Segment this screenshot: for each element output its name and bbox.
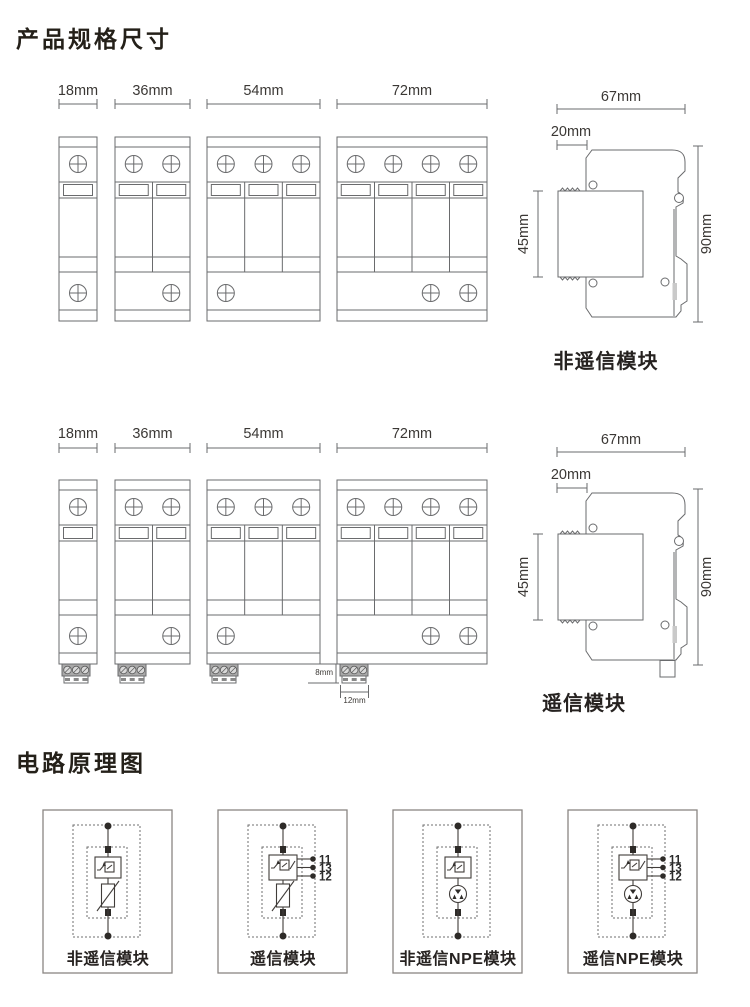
side-view-drawing [558, 150, 687, 317]
din-clip-spring [673, 283, 678, 300]
dim-label-45mm: 45mm [516, 557, 532, 597]
width-label: 18mm [58, 83, 98, 99]
circuit-card-2: 111312遥信模块 [218, 810, 347, 973]
side-view-drawing-row2 [558, 493, 687, 660]
module-front-54mm-row1 [207, 137, 320, 321]
screw-hole [675, 194, 684, 203]
diagram-canvas: 67mm 20mm 45mm 90mm 67mm 20mm 45mm 90mm … [0, 0, 750, 1007]
module-front-72mm-row2 [337, 480, 487, 683]
signal-terminal-dot [310, 856, 316, 862]
circuit-diagram-cards: 非遥信模块111312遥信模块非遥信NPE模块111312遥信NPE模块 [43, 810, 697, 973]
circuit-card-label: 遥信模块 [250, 949, 317, 968]
module-front-18mm-row1 [59, 137, 97, 321]
terminal-dot-bottom [455, 933, 462, 940]
width-label: 54mm [243, 83, 283, 99]
width-label: 72mm [392, 426, 432, 442]
terminal-dot-top [455, 823, 462, 830]
terminal-dot-top [280, 823, 287, 830]
width-label: 36mm [132, 83, 172, 99]
dim-label-20mm: 20mm [551, 467, 591, 483]
signal-terminal-side [660, 661, 675, 678]
dim-label-12mm: 12mm [343, 696, 366, 705]
module-front-36mm-row1 [115, 137, 190, 321]
module-front-36mm-row2 [115, 480, 190, 683]
module-front-54mm-row2 [207, 480, 320, 683]
screw-hole [589, 181, 597, 189]
module-front-72mm-row1 [337, 137, 487, 321]
signal-terminal-dot [660, 873, 666, 879]
width-label: 18mm [58, 426, 98, 442]
module-front-18mm-row2 [59, 480, 97, 683]
width-label: 36mm [132, 426, 172, 442]
row1-caption: 非遥信模块 [554, 349, 659, 373]
datasheet-page: 产品规格尺寸 电路原理图 67mm 20mm 45mm 90mm 67mm 20… [0, 0, 750, 1007]
circuit-card-label: 遥信NPE模块 [583, 949, 684, 968]
signal-terminal-dot [660, 865, 666, 871]
signal-terminal-dot [310, 873, 316, 879]
circuit-card-label: 非遥信NPE模块 [400, 949, 517, 968]
dim-label-8mm: 8mm [315, 668, 333, 677]
dim-label-90mm: 90mm [699, 214, 715, 254]
width-label: 54mm [243, 426, 283, 442]
dim-label-67mm: 67mm [601, 432, 641, 448]
circuit-card-label: 非遥信模块 [67, 949, 150, 968]
dim-label-20mm: 20mm [551, 124, 591, 140]
dim-label-67mm: 67mm [601, 89, 641, 105]
signal-terminal-dot [310, 865, 316, 871]
dim-label-45mm: 45mm [516, 214, 532, 254]
module-front-views [59, 137, 487, 683]
signal-terminal-number: 12 [319, 872, 332, 884]
dim-label-90mm: 90mm [699, 557, 715, 597]
terminal-dot-bottom [105, 933, 112, 940]
terminal-dot-bottom [630, 933, 637, 940]
signal-terminal-dot [660, 856, 666, 862]
width-label: 72mm [392, 83, 432, 99]
circuit-card-3: 非遥信NPE模块 [393, 810, 522, 973]
screw-hole [661, 278, 669, 286]
row2-caption: 遥信模块 [542, 691, 626, 715]
circuit-card-1: 非遥信模块 [43, 810, 172, 973]
terminal-dot-top [105, 823, 112, 830]
signal-terminal-number: 12 [669, 872, 682, 884]
terminal-dot-top [630, 823, 637, 830]
plug-module-body [558, 191, 643, 277]
screw-hole [589, 279, 597, 287]
circuit-card-4: 111312遥信NPE模块 [568, 810, 697, 973]
terminal-dot-bottom [280, 933, 287, 940]
